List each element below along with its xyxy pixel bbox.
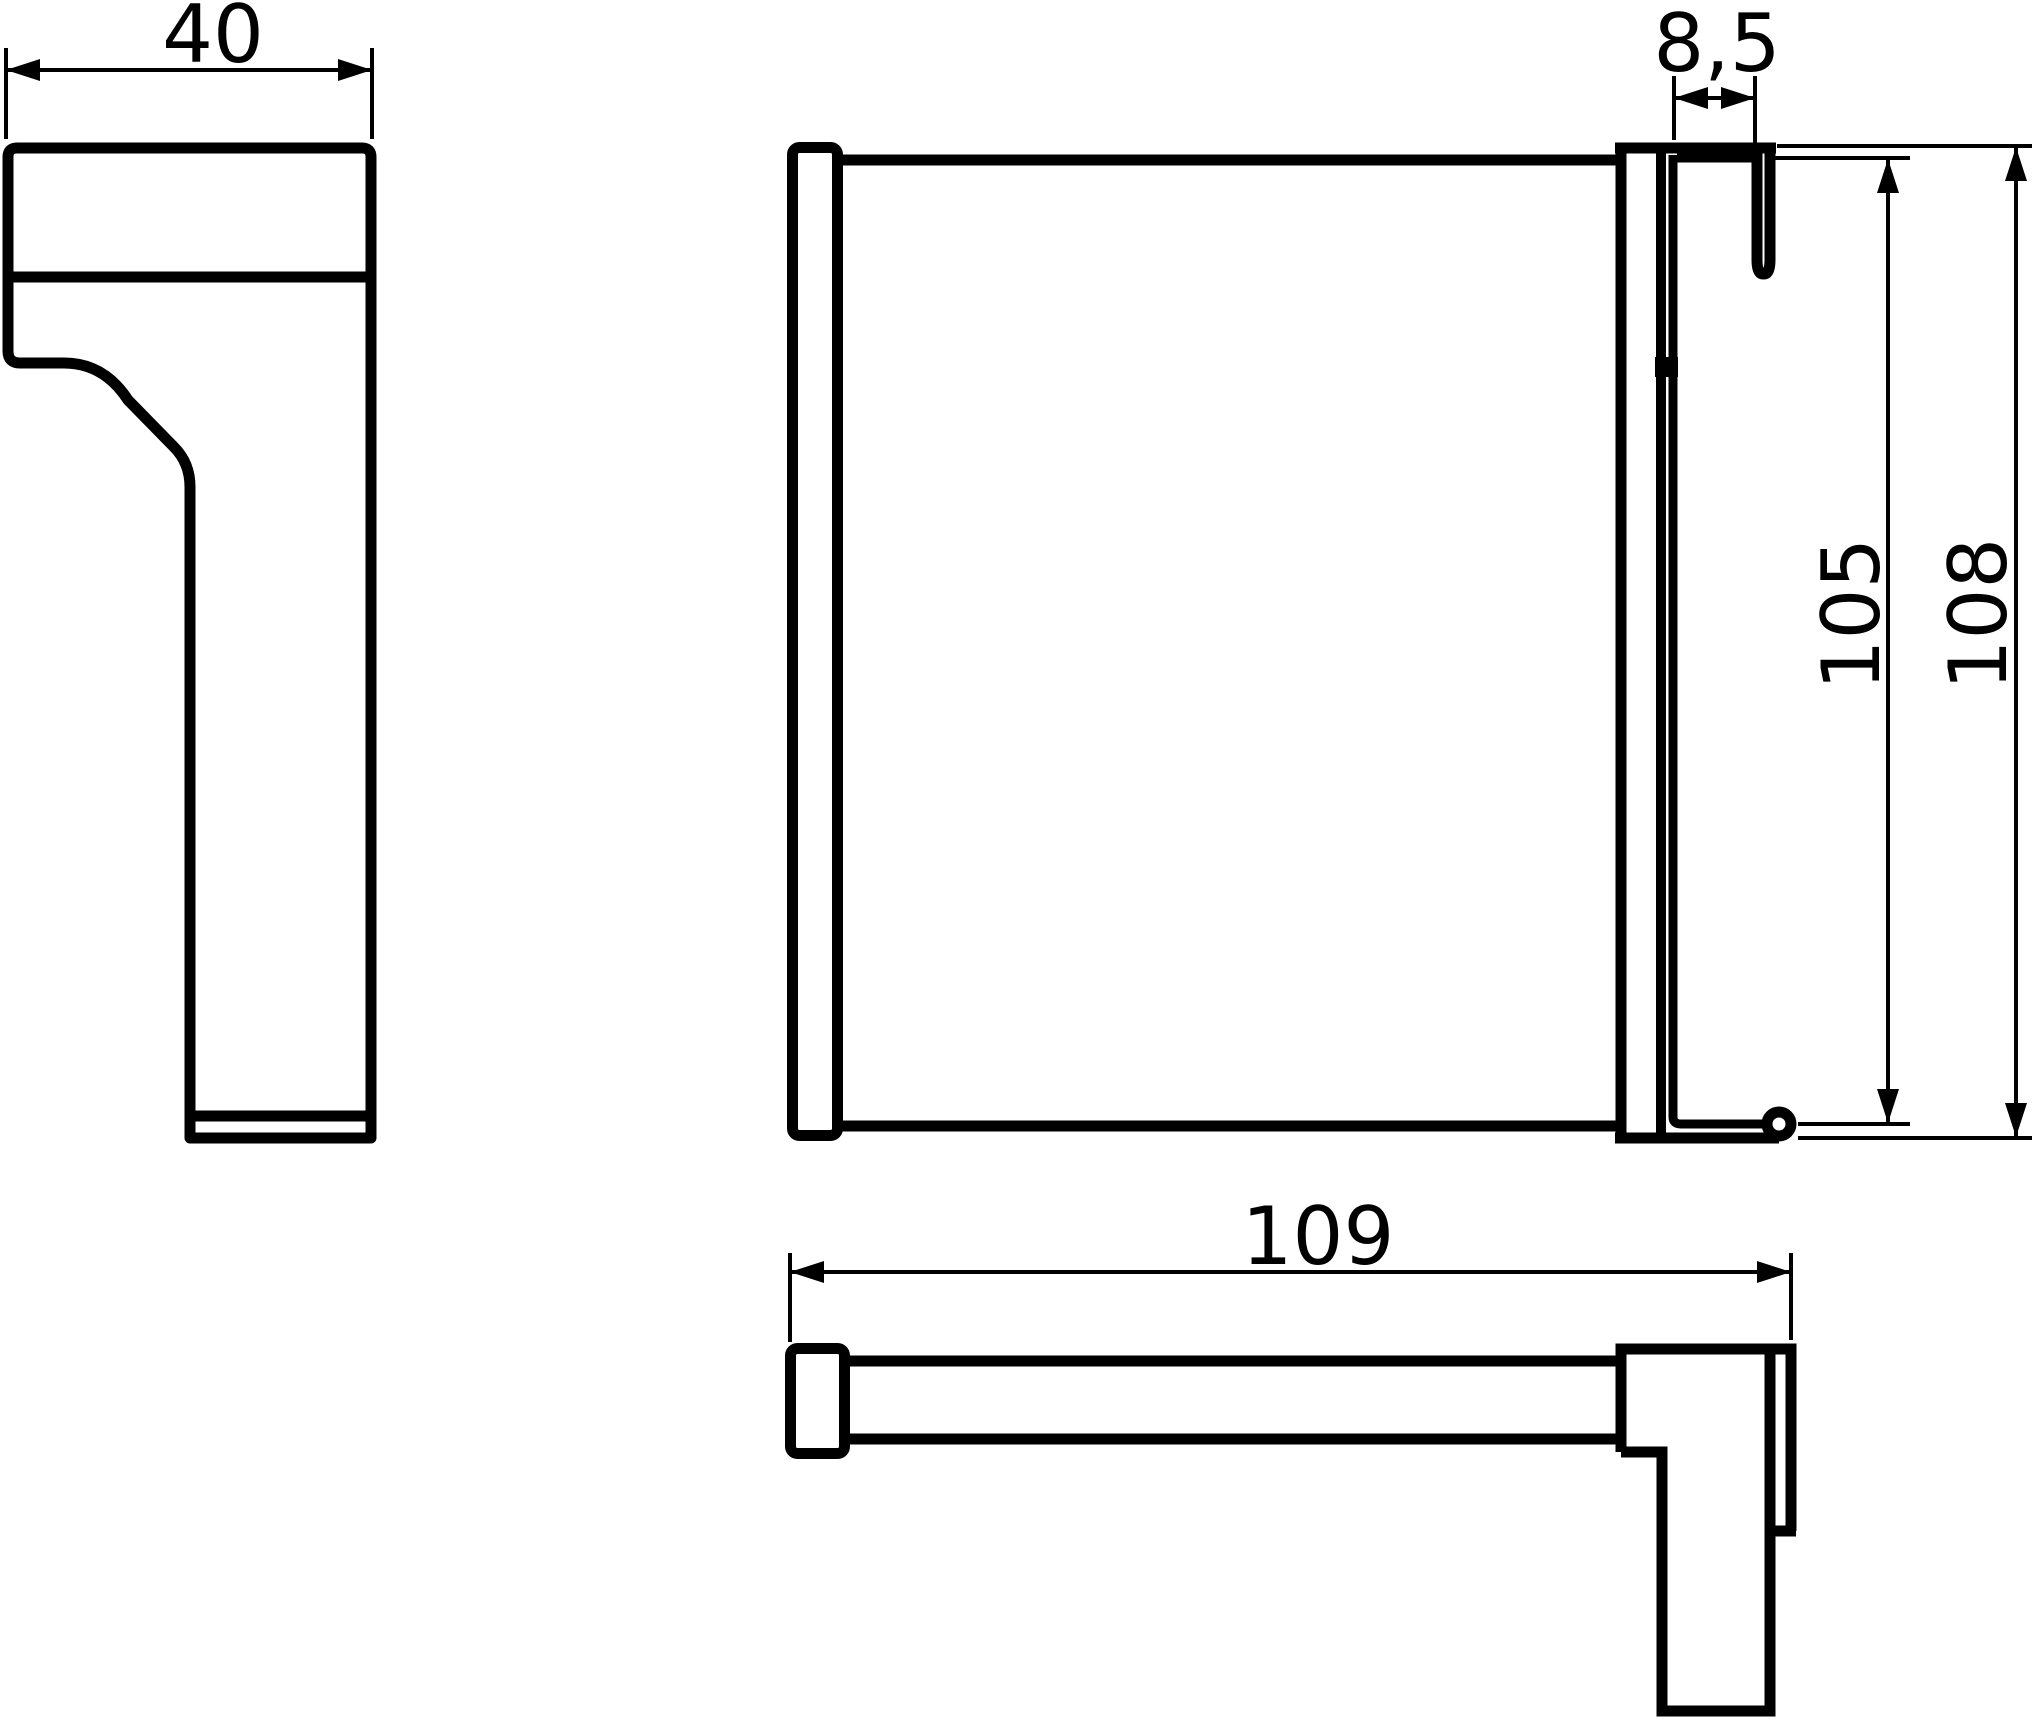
dimension-label-105: 105 xyxy=(1805,538,1898,691)
dimension-label-108: 108 xyxy=(1932,538,2025,691)
technical-drawing: 40 8,5 105 108 109 xyxy=(0,0,2034,1720)
arrowhead-down xyxy=(1877,1089,1899,1123)
dimension-label-40: 40 xyxy=(162,0,264,81)
arrowhead-left xyxy=(6,59,40,81)
arrowhead-up xyxy=(2005,147,2027,181)
dimension-overall-length: 109 xyxy=(790,1190,1791,1342)
hook-plate-inner-line xyxy=(1673,155,1762,1124)
bottom-view-end-cap xyxy=(791,1349,845,1454)
dimension-label-8-5: 8,5 xyxy=(1653,0,1780,90)
arrowhead-left xyxy=(790,1261,824,1283)
dimension-label-109: 109 xyxy=(1242,1190,1395,1283)
dimension-hook-gap: 8,5 xyxy=(1653,0,1780,150)
drawing-canvas: 40 8,5 105 108 109 xyxy=(0,0,2034,1720)
hook-right-prong xyxy=(1757,148,1770,274)
side-view-outline xyxy=(8,148,371,1138)
front-view xyxy=(793,143,1792,1143)
dimension-side-width: 40 xyxy=(6,0,372,139)
arrowhead-down xyxy=(2005,1103,2027,1137)
arrowhead-right xyxy=(338,59,372,81)
bottom-view xyxy=(791,1349,1797,1712)
arrowhead-right xyxy=(1757,1261,1791,1283)
arrowhead-right xyxy=(1721,87,1755,109)
dimension-hook-inner-height: 105 xyxy=(1765,158,1910,1124)
arrowhead-up xyxy=(1877,159,1899,193)
front-view-end-bar xyxy=(793,148,838,1136)
hook-plate-crossbar xyxy=(1655,357,1678,377)
side-view xyxy=(4,148,375,1138)
arrowhead-left xyxy=(1674,87,1708,109)
bottom-view-block-inner xyxy=(1621,1354,1770,1711)
hook-bottom-curl xyxy=(1767,1112,1791,1136)
